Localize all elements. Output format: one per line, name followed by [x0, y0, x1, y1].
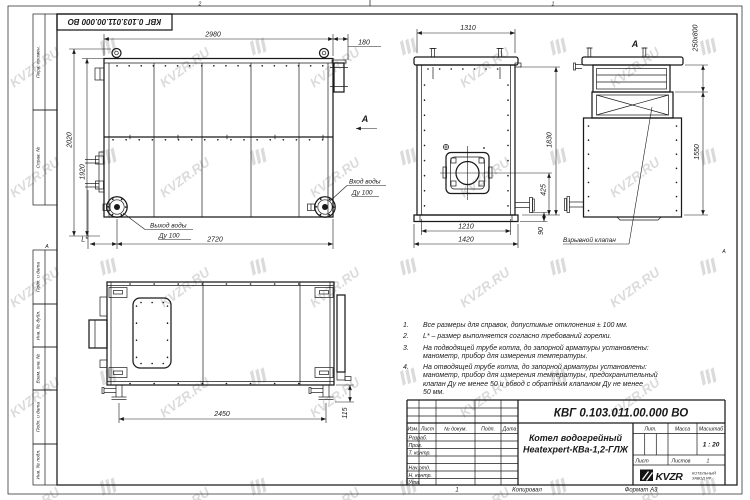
- field-vzam-inv: Взам. инв. №: [36, 354, 42, 384]
- field-inv-dubl: Инв. № дубл.: [36, 311, 42, 341]
- doc-number-stamp-rotated: КВГ 0.103.011.00.000 ВО: [67, 17, 161, 26]
- note-number: 2.: [403, 333, 423, 341]
- row-tkontr: Т. контр.: [409, 451, 431, 457]
- note-line: манометр, прибор для измерения температу…: [423, 372, 658, 380]
- note-item: 3. На подводящей трубе котла, до запорно…: [403, 345, 733, 362]
- dim-180: 180: [358, 40, 370, 47]
- outlet-label: Выход воды: [150, 222, 187, 230]
- lit-label: Лит.: [643, 427, 656, 433]
- dim-2450: 2450: [213, 411, 230, 418]
- view-a-arrow-label: А: [361, 114, 369, 124]
- dim-425: 425: [541, 184, 548, 196]
- note-line: На подводящей трубе котла, до запорной а…: [423, 345, 649, 353]
- drawing-canvas: KVZR.RU 2 1 А А КВГ 0.103.011.00.000: [0, 0, 750, 500]
- explosion-valve-callout: Взрывной клапан: [563, 236, 616, 244]
- field-perv-primen: Перв. примен.: [36, 46, 42, 78]
- col-izm: Изм.: [407, 427, 418, 433]
- logo-text: KVZR: [656, 471, 684, 483]
- note-number: 4.: [403, 364, 423, 397]
- field-podp-data-1: Подп. и дата: [36, 262, 42, 292]
- sheets-value: 1: [707, 459, 710, 465]
- scale-label: Масштаб: [699, 427, 724, 433]
- dim-2980: 2980: [204, 32, 221, 39]
- col-sign: Подп.: [481, 427, 495, 433]
- dim-90: 90: [538, 227, 545, 235]
- note-item: 4. На отводящей трубе котла, до запорной…: [403, 364, 733, 397]
- footer-format-label: Формат А3: [625, 488, 658, 494]
- dim-1420: 1420: [458, 237, 474, 244]
- note-number: 3.: [403, 345, 423, 362]
- sheets-label: Листов: [671, 459, 691, 465]
- col-list: Лист: [420, 427, 435, 433]
- field-podp-data-2: Подп. и дата: [36, 402, 42, 432]
- dim-L: L*: [81, 237, 88, 244]
- drawing-sheet: KVZR.RU 2 1 А А КВГ 0.103.011.00.000: [0, 0, 750, 500]
- zone-letter-left: А: [44, 244, 49, 250]
- dim-115: 115: [342, 407, 349, 418]
- title-doc-number: КВГ 0.103.011.00.000 ВО: [554, 408, 689, 420]
- dim-1210: 1210: [458, 224, 474, 231]
- dim-2720: 2720: [206, 237, 223, 244]
- logo-sub-line2: ЗАВОД РФ: [692, 477, 711, 481]
- scale-value: 1 : 20: [703, 442, 720, 449]
- dim-1310: 1310: [460, 25, 476, 32]
- product-name-line2: Heatexpert-КВа-1,2-ГЛЖ: [523, 445, 629, 455]
- note-line: 50 мм.: [423, 389, 658, 397]
- footer-copied-label: Копировал: [512, 488, 542, 494]
- outlet-size: Ду 100: [158, 233, 180, 240]
- field-inv-podl: Инв. № подл.: [36, 450, 42, 480]
- product-name-line1: Котел водогрейный: [529, 433, 622, 443]
- note-item: 1. Все размеры для справок, допустимые о…: [403, 322, 733, 330]
- sheet-label: Лист: [634, 459, 649, 465]
- footer-zone-number: 1: [455, 488, 458, 494]
- row-utv: Утв.: [409, 480, 421, 486]
- col-date: Дата: [502, 427, 517, 433]
- note-line: клапан Ду не менее 50 и обвод с обратным…: [423, 381, 658, 389]
- note-line: Все размеры для справок, допустимые откл…: [423, 322, 628, 330]
- dim-1550: 1550: [694, 144, 701, 160]
- row-nkontr: Н. контр.: [409, 473, 432, 479]
- row-prov: Пров.: [409, 443, 423, 449]
- inlet-size: Ду 100: [351, 190, 373, 197]
- view-a-label: А: [631, 39, 639, 49]
- row-nachotd: Нач.отд.: [409, 466, 431, 472]
- row-razrab: Разраб.: [409, 436, 428, 442]
- technical-notes: 1. Все размеры для справок, допустимые о…: [403, 322, 733, 400]
- inlet-label: Вход воды: [349, 178, 381, 186]
- dim-duct-250x800: 250x800: [693, 24, 700, 52]
- col-doc: № докум.: [444, 427, 467, 433]
- logo-sub-line1: КОТЕЛЬНЫЙ: [692, 472, 716, 476]
- note-number: 1.: [403, 322, 423, 330]
- mass-label: Масса: [675, 427, 690, 433]
- field-sprav-no: Справ. №: [36, 147, 42, 169]
- dim-1920: 1920: [80, 164, 87, 180]
- dim-2020: 2020: [67, 132, 74, 149]
- note-line: манометр, прибор для измерения температу…: [423, 353, 649, 361]
- zone-letter-right: А: [721, 249, 726, 255]
- zone-number-top-right: 1: [552, 2, 555, 8]
- note-line: L* – размер выполняется согласно требова…: [423, 333, 611, 341]
- zone-number-top-left: 2: [198, 2, 202, 8]
- dim-1830: 1830: [547, 132, 554, 148]
- note-item: 2. L* – размер выполняется согласно треб…: [403, 333, 733, 341]
